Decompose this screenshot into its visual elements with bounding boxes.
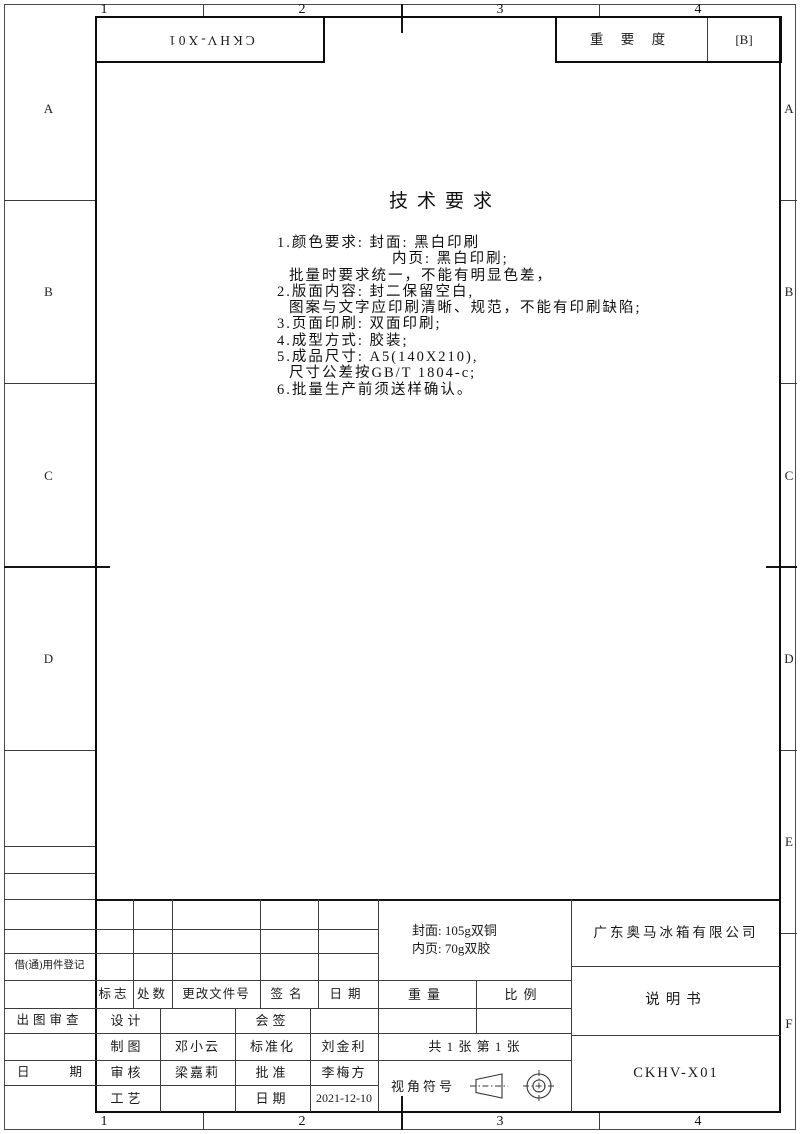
zone-row-left-d: D <box>4 567 93 750</box>
zone-row-right-a: A <box>781 16 797 200</box>
tech-requirement-line: 内页: 黑白印刷; <box>392 251 642 267</box>
margin-line <box>781 750 797 751</box>
tech-requirement-line: 3.页面印刷: 双面印刷; <box>277 316 642 332</box>
margin-line <box>4 929 95 930</box>
margin-line <box>4 899 95 900</box>
tech-requirement-line: 批量时要求统一，不能有明显色差， <box>289 268 642 284</box>
tech-requirement-line: 2.版面内容: 封二保留空白, <box>277 284 642 300</box>
revision-count-header: 处数 <box>133 980 172 1008</box>
zone-row-left-c: C <box>4 383 93 567</box>
zone-row-right-b: B <box>781 200 797 383</box>
tech-requirement-line: 6.批量生产前须送样确认。 <box>277 382 642 398</box>
tech-requirement-line: 图案与文字应印刷清晰、规范，不能有印刷缺陷; <box>289 300 642 316</box>
zone-tick <box>599 4 600 16</box>
zone-row-right-e: E <box>781 750 797 933</box>
margin-line <box>781 933 797 934</box>
doc-title: 说明书 <box>571 966 781 1035</box>
margin-line <box>781 383 797 384</box>
zone-tick <box>599 1113 600 1130</box>
drawing-review-label: 出图审查 <box>4 1008 95 1033</box>
tech-requirements-title: 技术要求 <box>295 186 595 213</box>
zone-column-bottom-1: 1 <box>64 1115 144 1129</box>
margin-line <box>4 750 95 751</box>
zone-tick <box>203 1113 204 1130</box>
margin-line <box>4 1085 95 1086</box>
material-cover: 封面: 105g双铜 <box>412 922 497 940</box>
margin-line <box>4 846 95 847</box>
zone-row-right-d: D <box>781 567 797 750</box>
zone-column-top-2: 2 <box>262 3 342 16</box>
date-value: 2021-12-10 <box>310 1085 378 1111</box>
tech-requirement-line: 1.颜色要求: 封面: 黑白印刷 <box>277 235 642 251</box>
tech-requirement-line: 尺寸公差按GB/T 1804-c; <box>289 365 642 381</box>
zone-column-bottom-2: 2 <box>262 1115 342 1129</box>
revision-fileno-header: 更改文件号 <box>172 980 260 1008</box>
title-block-line <box>95 929 378 930</box>
zone-column-top-4: 4 <box>658 3 738 16</box>
design-name <box>160 1008 235 1033</box>
projection-cone-icon <box>469 1071 509 1101</box>
material-inner: 内页: 70g双胶 <box>412 940 490 958</box>
tech-requirements-body: 1.颜色要求: 封面: 黑白印刷 内页: 黑白印刷; 批量时要求统一，不能有明显… <box>277 235 642 398</box>
margin-line <box>4 1033 95 1034</box>
draft-label: 制图 <box>95 1033 160 1060</box>
check-name: 梁嘉莉 <box>160 1060 235 1085</box>
view-symbol-row: 视角符号 <box>378 1060 571 1112</box>
revision-date-header: 日期 <box>318 980 378 1008</box>
zone-column-bottom-3: 3 <box>460 1115 540 1129</box>
zone-row-right-c: C <box>781 383 797 567</box>
approve-label: 批准 <box>235 1060 310 1085</box>
material-spec: 封面: 105g双铜 内页: 70g双胶 <box>378 899 571 980</box>
zone-row-left-a: A <box>4 16 93 200</box>
check-label: 审核 <box>95 1060 160 1085</box>
margin-line <box>4 980 95 981</box>
drawing-sheet: { "zones": { "top_columns": ["1","2","3"… <box>0 0 802 1134</box>
standardization-label: 标准化 <box>235 1033 310 1060</box>
approve-name: 李梅方 <box>310 1060 378 1085</box>
zone-row-left-b: B <box>4 200 93 383</box>
date-label: 日期 <box>235 1085 310 1111</box>
zone-column-top-1: 1 <box>64 3 144 16</box>
draft-name: 邓小云 <box>160 1033 235 1060</box>
margin-line <box>4 873 95 874</box>
zone-tick <box>203 4 204 16</box>
revision-mark-header: 标志 <box>95 980 133 1008</box>
view-symbol-label: 视角符号 <box>391 1080 455 1093</box>
importance-label: 重 要 度 <box>555 16 707 63</box>
projection-front-view-icon <box>523 1069 555 1103</box>
margin-line <box>781 200 797 201</box>
borrow-parts-label: 借(通)用件登记 <box>4 953 95 980</box>
doc-code: CKHV-X01 <box>571 1035 781 1112</box>
company-name: 广东奥马冰箱有限公司 <box>571 899 781 966</box>
importance-value: [B] <box>707 16 781 63</box>
tech-requirement-line: 4.成型方式: 胶装; <box>277 333 642 349</box>
margin-date-text: 日期 <box>17 1065 82 1079</box>
scale-label: 比例 <box>476 980 571 1008</box>
margin-line <box>4 383 95 384</box>
tech-requirement-line: 5.成品尺寸: A5(140X210), <box>277 349 642 365</box>
title-block-line <box>95 953 378 954</box>
weight-label: 重量 <box>378 980 476 1008</box>
standardization-name: 刘金利 <box>310 1033 378 1060</box>
rotated-doc-code: CKHV-X01 <box>166 32 255 48</box>
zone-column-top-3: 3 <box>460 3 540 16</box>
design-label: 设计 <box>95 1008 160 1033</box>
process-label: 工艺 <box>95 1085 160 1111</box>
margin-date-label: 日期 <box>4 1060 95 1085</box>
zone-column-bottom-4: 4 <box>658 1115 738 1129</box>
sheet-count: 共 1 张 第 1 张 <box>378 1033 571 1060</box>
process-name <box>160 1085 235 1111</box>
zone-row-right-f: F <box>781 933 797 1113</box>
margin-line <box>4 200 95 201</box>
countersign-name <box>310 1008 378 1033</box>
countersign-label: 会签 <box>235 1008 310 1033</box>
revision-signature-header: 签名 <box>260 980 318 1008</box>
rotated-code-box: CKHV-X01 <box>95 16 325 63</box>
